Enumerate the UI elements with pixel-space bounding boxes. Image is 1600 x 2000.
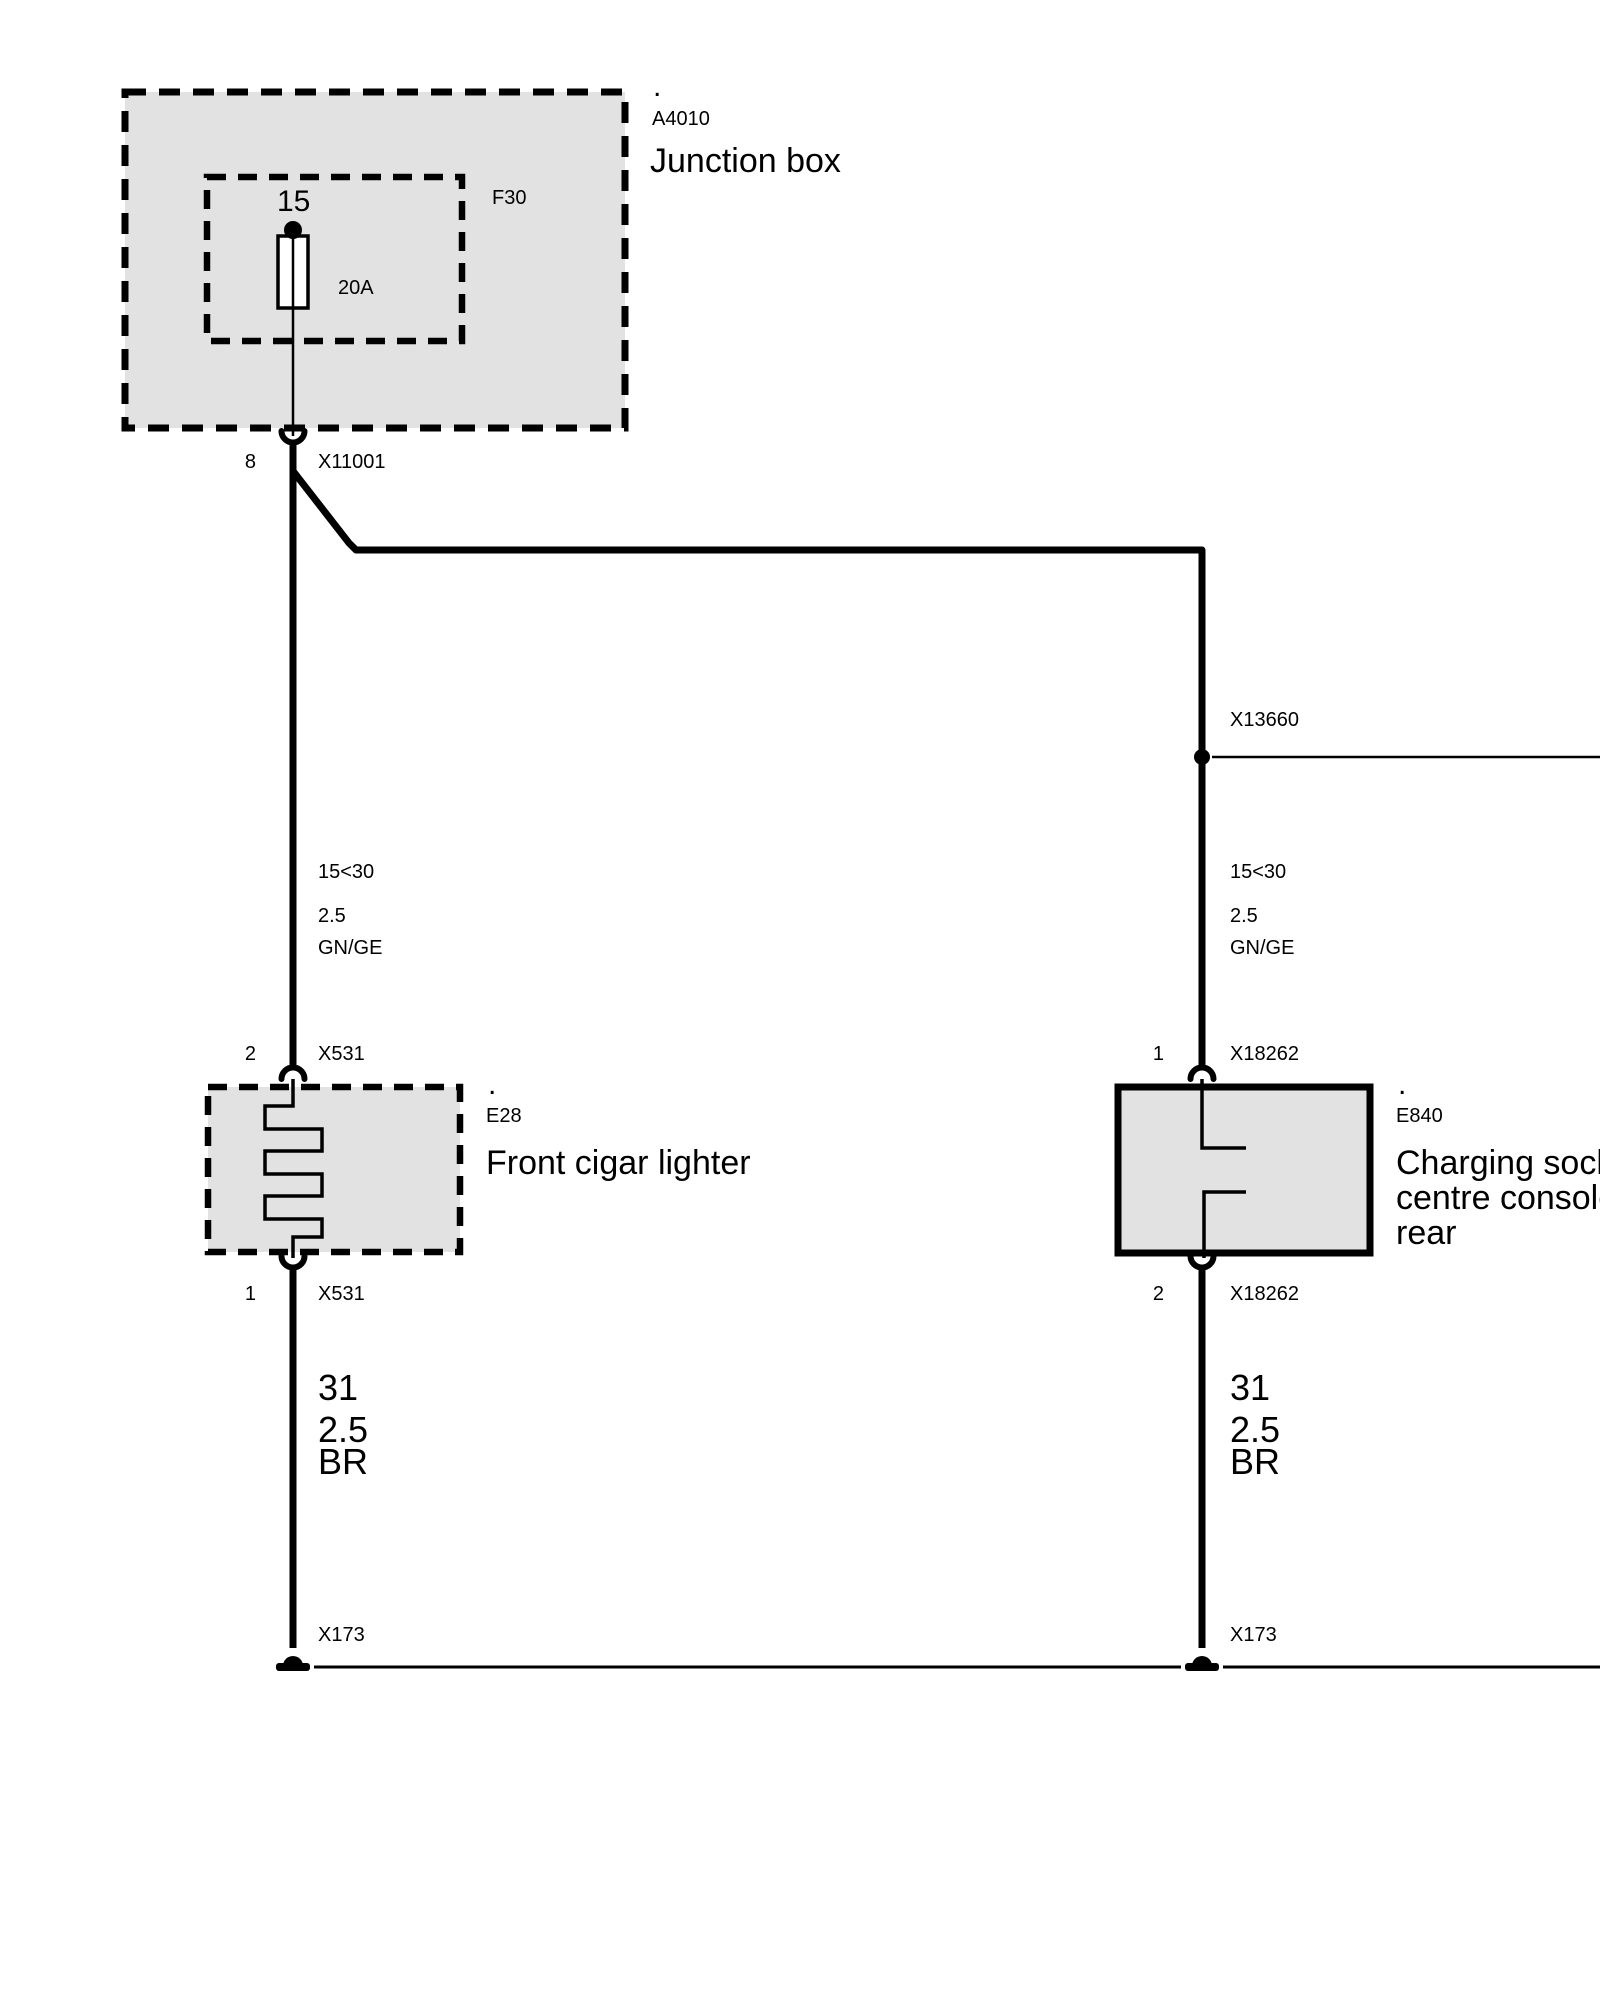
wire-left-top-section: 2.5 (318, 904, 346, 928)
connector-x531-pin2-symbol (282, 1068, 305, 1080)
cigar-lighter-outline (208, 1087, 460, 1252)
wire-branch-right (293, 471, 1202, 1068)
connector-x18262-top-label: X18262 (1230, 1042, 1299, 1066)
cigar-lighter-bottom-pin: 1 (212, 1282, 256, 1306)
connector-x18262-bottom-label: X18262 (1230, 1282, 1299, 1306)
cigar-lighter-dot: . (488, 1070, 496, 1100)
cigar-lighter-title: Front cigar lighter (486, 1146, 751, 1181)
cigar-lighter-code: E28 (486, 1104, 522, 1128)
wire-right-top-color: GN/GE (1230, 936, 1294, 960)
charging-socket-outline (1118, 1087, 1370, 1253)
charging-socket-title-line1: Charging socket (1396, 1146, 1600, 1181)
junction-box-title: Junction box (650, 144, 841, 179)
fuse-code-label: F30 (492, 186, 526, 210)
charging-socket-title-line3: rear (1396, 1216, 1456, 1251)
wire-left-bottom-color: BR (318, 1446, 368, 1478)
connector-x531-top-label: X531 (318, 1042, 365, 1066)
junction-box-code: A4010 (652, 107, 710, 131)
ground-right-label: X173 (1230, 1623, 1277, 1647)
charging-socket-dot: . (1398, 1070, 1406, 1100)
wire-left-top-circuit: 15<30 (318, 860, 374, 884)
connector-x531-bottom-label: X531 (318, 1282, 365, 1306)
ground-left-bar-symbol (276, 1663, 310, 1671)
diagram-canvas (0, 0, 1600, 2000)
splice-x13660-label: X13660 (1230, 708, 1299, 732)
junction-box-pin-label: 8 (212, 450, 256, 474)
wire-right-top-circuit: 15<30 (1230, 860, 1286, 884)
ground-right-bar-symbol (1185, 1663, 1219, 1671)
fuse-box-outline (207, 177, 462, 341)
wire-right-bottom-color: BR (1230, 1446, 1280, 1478)
connector-x18262-pin2-symbol (1191, 1256, 1214, 1268)
cigar-lighter-top-pin: 2 (212, 1042, 256, 1066)
charging-socket-bottom-pin: 2 (1120, 1282, 1164, 1306)
connector-x18262-pin1-symbol (1191, 1068, 1214, 1080)
splice-x13660-dot (1194, 749, 1210, 765)
wiring-diagram-page: . A4010 Junction box 15 F30 20A 8 X11001… (0, 0, 1600, 2000)
fuse-terminal-label: 15 (277, 186, 310, 218)
wire-left-top-color: GN/GE (318, 936, 382, 960)
charging-socket-title-line2: centre console (1396, 1181, 1600, 1216)
ground-left-label: X173 (318, 1623, 365, 1647)
fuse-terminal-dot (284, 221, 302, 239)
charging-socket-top-pin: 1 (1120, 1042, 1164, 1066)
wire-left-bottom-circuit: 31 (318, 1372, 358, 1404)
charging-socket-code: E840 (1396, 1104, 1443, 1128)
wire-right-top-section: 2.5 (1230, 904, 1258, 928)
fuse-rating-label: 20A (338, 276, 374, 300)
wire-right-bottom-circuit: 31 (1230, 1372, 1270, 1404)
connector-x11001-label: X11001 (318, 450, 385, 474)
junction-box-dot: . (653, 72, 661, 102)
